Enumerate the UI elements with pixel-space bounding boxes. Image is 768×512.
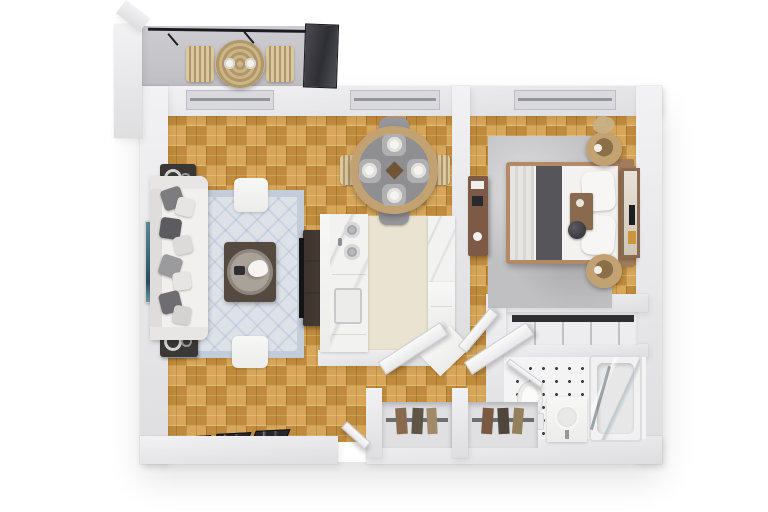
hall-closet-wall — [452, 388, 468, 458]
sink-bowl — [344, 222, 360, 238]
dresser-decor — [473, 232, 482, 241]
wire-shelf — [618, 322, 620, 345]
cup — [224, 58, 235, 69]
bottom-wall-left — [140, 436, 338, 464]
hanging-clothes — [426, 408, 437, 434]
sink-bowl — [344, 244, 360, 260]
patio-chair — [266, 46, 294, 82]
hall-closet-wall — [366, 388, 382, 458]
orchid — [248, 260, 268, 277]
table-centerpiece — [385, 161, 403, 179]
balcony-left-wall — [114, 24, 142, 138]
faucet — [338, 238, 342, 246]
counter-seam — [332, 334, 366, 335]
tray-cup — [576, 199, 584, 207]
throw-pillow — [172, 305, 193, 326]
folded-blanket — [510, 166, 534, 260]
round-nightstand — [586, 132, 622, 166]
wire-shelf — [562, 322, 564, 345]
throw-pillow — [172, 234, 193, 255]
wire-shelf — [590, 322, 592, 345]
floor-plan-canvas — [0, 0, 768, 512]
bedroom-window — [514, 90, 616, 110]
closet-hanging-rod — [512, 315, 634, 322]
window-sash — [354, 98, 436, 101]
tv-screen — [299, 238, 304, 318]
shower-tub — [589, 355, 642, 442]
dining-window — [350, 90, 440, 110]
gold-vase — [628, 231, 636, 244]
cabinet-seam — [431, 306, 452, 307]
decor-box — [234, 266, 245, 275]
hall-closet-interior — [382, 402, 452, 448]
hanging-clothes — [395, 408, 408, 435]
plate — [387, 137, 402, 152]
balcony-sliding-door — [186, 90, 274, 110]
ottoman — [232, 336, 268, 368]
sofa-armrest — [150, 327, 208, 340]
hanging-clothes — [497, 408, 509, 435]
bed-runner — [536, 166, 562, 260]
bistro-table — [215, 40, 265, 88]
tall-dresser — [468, 176, 488, 256]
kitchen-right-counter — [428, 216, 455, 282]
vanity-sink — [554, 404, 580, 430]
kitchen-left-counter — [330, 214, 368, 352]
ottoman — [234, 178, 268, 212]
window-sash — [518, 98, 612, 101]
balcony-privacy-panel — [303, 23, 339, 88]
counter-seam — [332, 274, 366, 275]
vanity — [547, 397, 587, 442]
plate — [362, 163, 377, 178]
candle — [594, 144, 602, 152]
coffee-table — [224, 242, 276, 302]
hanging-clothes — [411, 408, 423, 435]
hanging-clothes — [512, 408, 524, 435]
hanging-clothes — [481, 408, 494, 435]
decor-sphere — [568, 221, 586, 239]
round-nightstand — [586, 254, 622, 288]
cup — [245, 58, 256, 69]
hall-closet-interior — [468, 402, 538, 448]
candlestick — [629, 205, 635, 225]
leaning-mirror — [621, 168, 640, 258]
dining-table — [350, 126, 438, 214]
window-sash — [190, 98, 270, 101]
dresser-decor — [471, 181, 484, 189]
plate — [411, 163, 426, 178]
oven-cooktop — [334, 288, 362, 324]
plate — [387, 188, 402, 203]
vanity-faucet — [565, 430, 569, 439]
throw-pillow — [172, 271, 192, 291]
wire-shelf — [534, 322, 536, 345]
kitchen-floor — [366, 216, 430, 352]
candle — [594, 266, 602, 274]
patio-chair — [186, 46, 214, 82]
dresser-decor — [472, 196, 483, 206]
